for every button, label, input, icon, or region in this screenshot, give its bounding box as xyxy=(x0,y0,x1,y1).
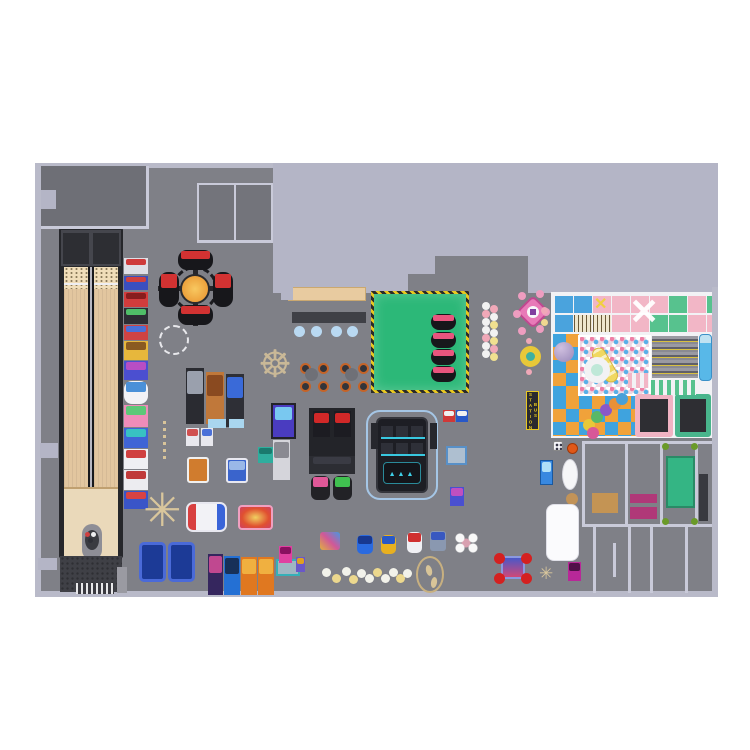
room-bench xyxy=(630,507,657,519)
kiddie-machine-accent xyxy=(126,471,146,479)
play-tile xyxy=(707,315,712,332)
starburst-floor-decal: ✳ xyxy=(143,487,182,533)
petal-seat xyxy=(513,310,521,318)
driving-machine-accent xyxy=(227,377,242,398)
moto-simulator xyxy=(186,368,204,424)
tile-x-decal-yellow: ✕ xyxy=(594,297,607,313)
floor-grate xyxy=(76,583,114,594)
pinball-machine-accent xyxy=(275,407,293,420)
wall xyxy=(41,226,149,229)
wall xyxy=(695,444,698,527)
stepping-dot xyxy=(490,345,498,353)
bowling-ball xyxy=(88,538,93,543)
carousel-car-accent xyxy=(161,274,178,288)
kiddie-machine-accent xyxy=(297,558,305,564)
donut-seat xyxy=(520,346,541,367)
trampoline xyxy=(675,394,711,437)
back-room-notch xyxy=(41,190,56,209)
floor-mat xyxy=(208,419,226,428)
floor-mat xyxy=(229,419,244,428)
bowling-ball xyxy=(91,532,96,537)
wall-pillar xyxy=(38,558,57,570)
kiddie-car-accent xyxy=(408,533,421,541)
racing-console xyxy=(309,456,355,474)
gashapon-machine xyxy=(124,381,148,404)
kiddie-car xyxy=(407,532,422,553)
pillar xyxy=(281,286,293,300)
go-kart-accent xyxy=(335,477,351,487)
wall xyxy=(650,527,653,593)
bumper-car-accent xyxy=(433,367,454,373)
seat-dot xyxy=(526,369,532,375)
kiddie-machine-accent xyxy=(126,259,146,265)
stool xyxy=(349,575,358,584)
tile-x-decal-white: ✕ xyxy=(629,294,659,330)
clock-floor-decal xyxy=(159,325,189,355)
stepping-dot xyxy=(490,353,498,361)
petal-seat xyxy=(536,290,544,298)
racing-seat xyxy=(334,411,351,437)
footprints-decal-ring xyxy=(416,556,444,593)
bowling-lane xyxy=(64,289,88,487)
kiddie-machine xyxy=(124,258,148,274)
cafe-table xyxy=(345,368,358,381)
kiddie-machine xyxy=(124,405,148,427)
vr-wing xyxy=(430,423,437,449)
bar-counter xyxy=(288,287,366,301)
vr-control-panel: ▲▲▲ xyxy=(383,462,421,484)
play-tile xyxy=(612,296,630,313)
cafe-chair xyxy=(318,363,329,374)
pillar xyxy=(117,567,127,593)
stool xyxy=(322,568,331,577)
wall-pillar xyxy=(40,443,58,458)
striped-mat xyxy=(651,380,696,395)
cafe-chair xyxy=(358,363,369,374)
ruler-decal xyxy=(163,421,166,459)
wall xyxy=(593,527,596,593)
small-machine xyxy=(456,410,468,422)
arcade-floor-plan: { "sign": {"label": "BUS STATION"}, "dec… xyxy=(0,0,750,750)
carousel-car xyxy=(159,272,179,307)
room-chair xyxy=(691,518,698,525)
bar-stool xyxy=(294,326,305,337)
bar-table xyxy=(292,312,366,323)
vr-wing xyxy=(371,423,378,449)
arcade-cabinet xyxy=(208,554,223,595)
game-table xyxy=(226,458,248,483)
bus-station-sign: BUS STATION xyxy=(526,391,539,430)
room-chair xyxy=(662,443,669,450)
small-machine-accent xyxy=(202,429,212,436)
kiddie-car-accent xyxy=(358,536,371,544)
racing-console-accent xyxy=(313,457,352,464)
bar-stool xyxy=(347,326,358,337)
kiddie-machine-accent xyxy=(126,293,146,299)
kiddie-machine xyxy=(124,325,148,340)
party-stool xyxy=(494,553,505,564)
room-bench xyxy=(630,494,657,503)
drone-toy xyxy=(455,533,478,553)
dice-toy xyxy=(553,441,563,451)
kiddie-machine xyxy=(124,449,148,469)
pinsetter-unit xyxy=(63,233,89,264)
cafe-chair xyxy=(300,381,311,392)
air-hockey-table xyxy=(186,502,227,532)
arcade-cabinet-accent xyxy=(225,558,238,574)
go-kart xyxy=(333,476,352,500)
play-ball xyxy=(554,342,574,362)
footprint xyxy=(425,564,433,576)
racing-seat-accent xyxy=(314,413,328,423)
claw-machine-accent xyxy=(259,559,272,574)
room-table xyxy=(666,456,695,508)
floor-mat xyxy=(446,446,467,465)
play-tile xyxy=(574,315,592,332)
driving-machine xyxy=(206,372,224,424)
kiddie-machine-accent xyxy=(126,362,146,370)
pinsetter-unit xyxy=(93,233,119,264)
bar-stool xyxy=(311,326,322,337)
footprint xyxy=(430,577,438,589)
party-stool xyxy=(494,573,505,584)
game-table-accent xyxy=(229,461,244,469)
bumper-car xyxy=(431,314,456,330)
stepping-dot xyxy=(490,305,498,313)
stepping-dot xyxy=(490,329,498,337)
stool xyxy=(342,567,351,576)
carousel-car xyxy=(213,272,233,307)
donut-float-center xyxy=(591,364,603,376)
wall xyxy=(271,183,273,242)
kiddie-car-accent xyxy=(382,536,395,544)
bumper-car-accent xyxy=(433,333,454,339)
pin-deck xyxy=(94,267,118,289)
floor-protrusion xyxy=(435,256,528,294)
vending-machine-accent xyxy=(274,442,288,458)
party-stool xyxy=(521,553,532,564)
wall xyxy=(685,527,688,593)
foul-line xyxy=(64,487,118,489)
play-tile xyxy=(612,315,630,332)
trampoline xyxy=(635,394,673,437)
kiddie-machine xyxy=(124,308,148,324)
wall xyxy=(628,527,631,593)
play-dot xyxy=(541,319,548,326)
stepping-dot xyxy=(490,321,498,329)
pin-deck xyxy=(64,267,88,289)
wall xyxy=(146,166,149,229)
stepping-dot xyxy=(490,313,498,321)
play-tile xyxy=(688,296,706,313)
kiddie-machine xyxy=(568,562,581,581)
crane-machine-accent xyxy=(126,342,146,350)
robot-ride-accent xyxy=(259,448,272,454)
robot-ride-accent xyxy=(431,532,444,540)
cafe-chair xyxy=(318,381,329,392)
room-cabinet xyxy=(699,474,708,521)
wall xyxy=(660,444,663,527)
wall xyxy=(234,183,236,242)
carousel-car-accent xyxy=(181,306,210,314)
caterpillar-segment xyxy=(587,427,599,439)
stepping-dot xyxy=(482,334,490,342)
back-room xyxy=(41,166,146,228)
claw-machine xyxy=(241,557,257,595)
kiddie-machine-accent xyxy=(569,563,580,571)
play-dot xyxy=(541,307,548,314)
stepping-dot xyxy=(482,302,490,310)
stepping-dot xyxy=(482,350,490,358)
wall xyxy=(613,543,616,577)
kiddie-machine xyxy=(124,292,148,307)
kiddie-machine-accent xyxy=(126,450,146,458)
phone-machine-accent xyxy=(542,462,551,471)
flower-table-core xyxy=(530,309,536,315)
party-stool xyxy=(521,573,532,584)
play-tile xyxy=(574,296,592,313)
play-tile xyxy=(688,315,706,332)
seat-dot xyxy=(526,338,532,344)
stool xyxy=(332,574,341,583)
room-chair xyxy=(662,518,669,525)
striped-mat xyxy=(628,373,649,388)
wall xyxy=(625,444,628,527)
kiddie-machine-accent xyxy=(126,429,146,437)
vr-triangle-lights: ▲▲▲ xyxy=(389,471,416,478)
kiddie-machine-accent xyxy=(126,309,146,315)
wall-bottom xyxy=(35,591,718,597)
carousel-car-accent xyxy=(215,274,232,288)
bowling-lane xyxy=(94,289,118,487)
racing-seat-accent xyxy=(335,413,349,423)
arcade-cabinet xyxy=(224,556,240,595)
stepping-dot xyxy=(482,326,490,334)
play-tile xyxy=(707,296,712,313)
cafe-chair xyxy=(358,381,369,392)
play-mat xyxy=(320,532,340,550)
rope-climb-lanes xyxy=(652,336,698,378)
carousel-hub xyxy=(180,274,210,304)
petal-seat xyxy=(518,292,526,300)
driving-machine-accent xyxy=(207,375,222,396)
pool-table xyxy=(168,542,195,582)
wall xyxy=(582,441,585,527)
bumper-car-accent xyxy=(433,350,454,356)
petal-seat xyxy=(518,327,526,335)
play-tile xyxy=(555,296,573,313)
foosball-table xyxy=(187,457,209,483)
stool xyxy=(403,569,412,578)
gashapon-machine-accent xyxy=(126,382,146,391)
kiddie-car xyxy=(381,535,396,554)
carousel-car-accent xyxy=(181,251,210,259)
small-machine-accent xyxy=(457,411,467,416)
kiddie-machine xyxy=(124,276,148,290)
play-tile xyxy=(593,315,611,332)
stepping-dot xyxy=(482,310,490,318)
kiddie-machine-accent xyxy=(451,488,463,496)
bumper-car-accent xyxy=(433,315,454,321)
kiddie-machine xyxy=(279,546,292,563)
wall xyxy=(197,183,199,242)
bowling-ball xyxy=(85,532,90,537)
play-tile xyxy=(669,296,687,313)
small-machine xyxy=(443,410,455,422)
go-kart xyxy=(311,476,330,500)
kiddie-machine-accent xyxy=(126,326,146,332)
moto-simulator-accent xyxy=(187,371,202,393)
kiddie-machine xyxy=(450,487,464,506)
room-chair xyxy=(691,443,698,450)
go-kart-accent xyxy=(313,477,329,487)
claw-machine-accent xyxy=(242,559,255,574)
stepping-dot xyxy=(482,318,490,326)
claw-machine xyxy=(258,557,274,595)
kiddie-car xyxy=(357,535,373,554)
bumper-car xyxy=(431,366,456,382)
crane-machine xyxy=(124,341,148,360)
kiddie-machine-accent xyxy=(126,277,146,283)
arcade-cabinet-accent xyxy=(209,556,222,572)
carousel-car xyxy=(178,305,213,325)
carousel-car xyxy=(178,250,213,270)
robot-ride xyxy=(258,447,273,463)
pool-table xyxy=(139,542,166,582)
vr-seat-row xyxy=(381,443,425,456)
stool xyxy=(365,574,374,583)
starburst-floor-decal-small: ✳ xyxy=(539,565,553,582)
service-counter xyxy=(546,504,579,561)
bumper-car xyxy=(431,332,456,348)
small-machine xyxy=(186,428,199,446)
vending-machine xyxy=(273,440,290,480)
small-machine xyxy=(201,428,213,446)
bench-oval xyxy=(562,459,578,490)
stepping-dot xyxy=(490,337,498,345)
play-tile xyxy=(555,315,573,332)
phone-machine xyxy=(540,460,553,485)
vr-seat-row xyxy=(381,426,425,439)
glow-table xyxy=(238,505,273,530)
kiddie-machine-accent xyxy=(126,406,146,415)
room-rug xyxy=(592,493,618,513)
robot-ride xyxy=(430,531,446,551)
kiddie-machine xyxy=(124,428,148,448)
stepping-dot xyxy=(482,342,490,350)
kiddie-machine-accent xyxy=(280,547,291,554)
stool xyxy=(381,574,390,583)
stool xyxy=(567,443,578,454)
small-machine-accent xyxy=(187,429,198,436)
kiddie-machine xyxy=(124,361,148,380)
petal-seat xyxy=(536,325,544,333)
bar-stool xyxy=(331,326,342,337)
caterpillar-segment xyxy=(616,393,628,405)
wall-right xyxy=(712,287,718,597)
play-tile xyxy=(669,315,687,332)
cafe-chair xyxy=(340,381,351,392)
helm-floor-decal: ☸ xyxy=(258,346,292,384)
cafe-table xyxy=(305,368,318,381)
pinball-machine xyxy=(271,403,296,439)
kiddie-machine xyxy=(296,557,305,572)
racing-seat xyxy=(313,411,330,437)
bumper-car xyxy=(431,349,456,365)
slide xyxy=(699,334,712,381)
small-machine-accent xyxy=(444,411,454,416)
